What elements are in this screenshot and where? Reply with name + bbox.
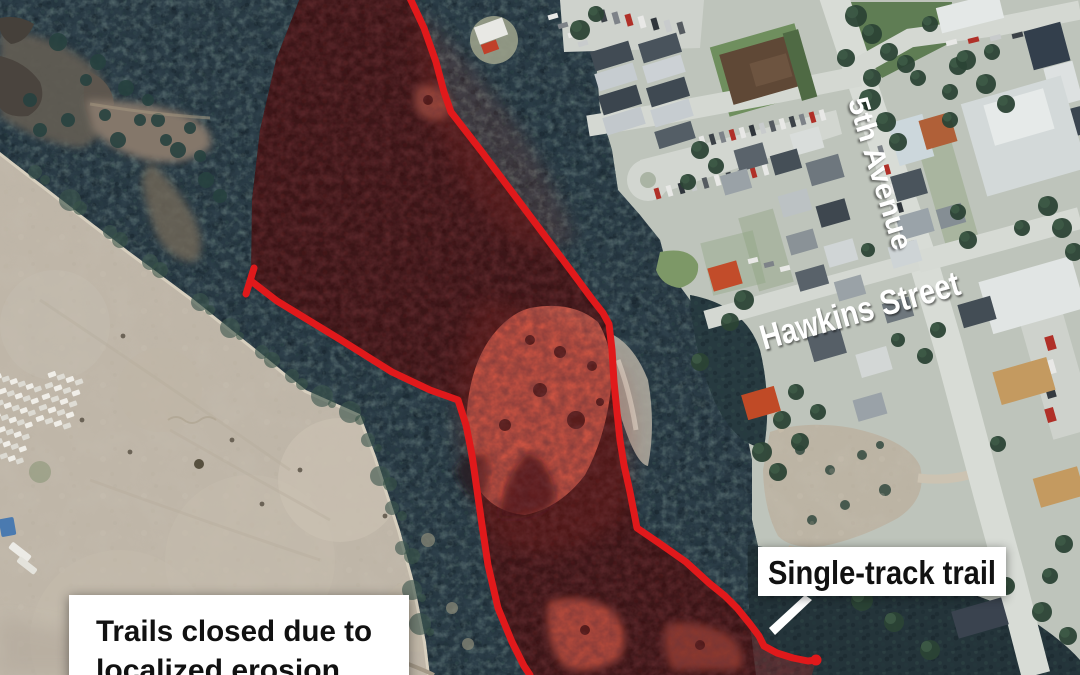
svg-text:Trails closed due to: Trails closed due to	[96, 615, 372, 648]
svg-text:Single-track trail: Single-track trail	[768, 554, 996, 591]
svg-text:localized erosion: localized erosion	[96, 654, 340, 675]
